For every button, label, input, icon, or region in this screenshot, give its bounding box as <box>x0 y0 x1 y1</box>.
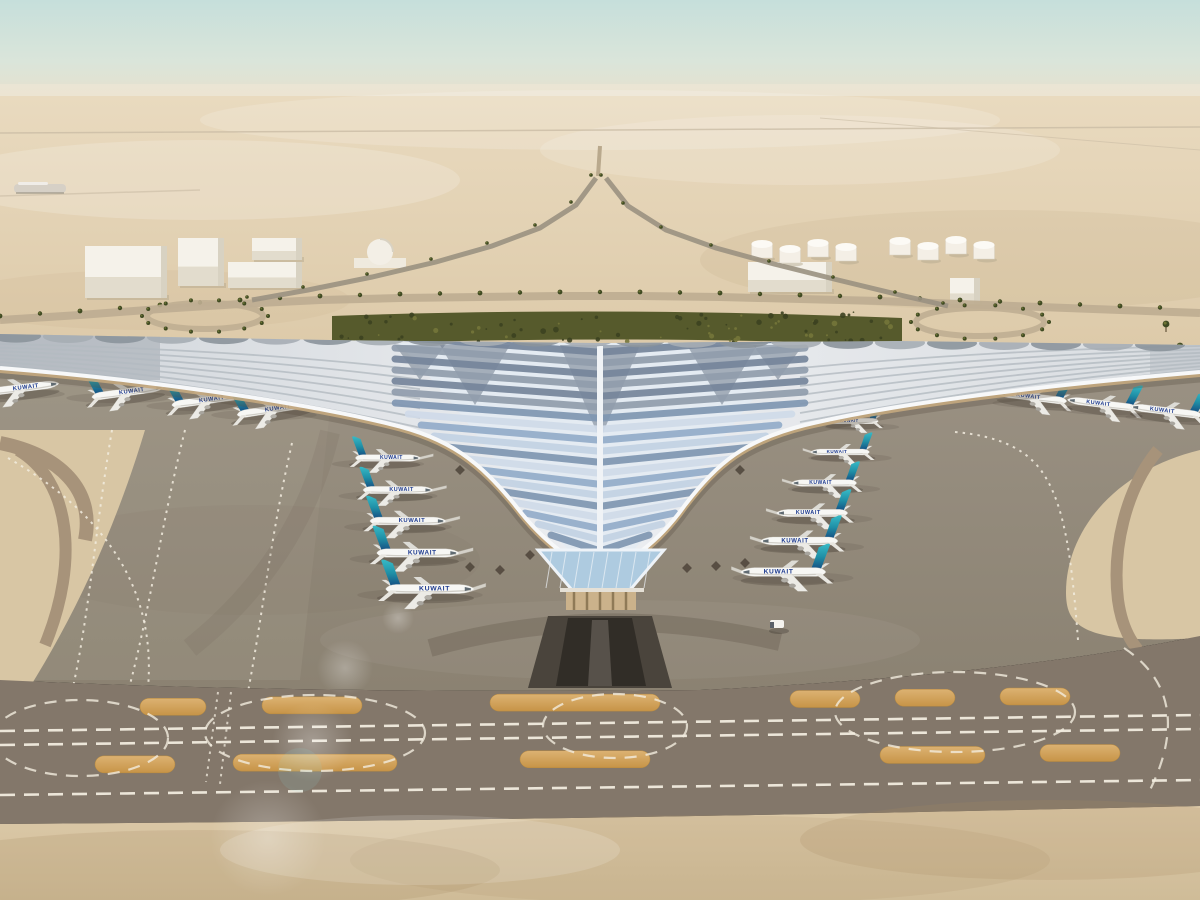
palm-tree <box>301 285 305 289</box>
engine <box>378 467 383 470</box>
palm-tree <box>146 321 150 325</box>
engine <box>406 564 412 568</box>
palm-tree <box>935 333 939 337</box>
palm-tree <box>164 301 168 305</box>
palm-tree <box>621 201 625 205</box>
palm-tree <box>659 225 663 229</box>
palm-tree <box>189 298 193 302</box>
palm-tree <box>1118 304 1123 309</box>
palm-tree <box>993 337 997 341</box>
sand-island <box>1040 745 1120 762</box>
engine <box>397 531 403 535</box>
palm-tree <box>998 299 1002 303</box>
sand-island <box>880 746 985 763</box>
palm-tree <box>533 223 537 227</box>
warehouse <box>85 246 169 300</box>
palm-tree <box>589 173 593 177</box>
palm-tree <box>831 275 835 279</box>
aircraft-livery-title: KUWAIT <box>399 518 426 524</box>
aircraft-livery-title: KUWAIT <box>827 449 848 454</box>
engine <box>403 526 409 530</box>
sand-island <box>490 694 660 711</box>
palm-tree <box>217 298 221 302</box>
sand-island <box>1000 688 1070 705</box>
palm-tree <box>189 330 193 334</box>
palm-tree <box>518 290 522 294</box>
palm-tree <box>767 259 771 263</box>
palm-tree <box>217 330 221 334</box>
palm-tree <box>941 301 945 305</box>
palm-tree <box>242 301 246 305</box>
palm-tree <box>1038 301 1043 306</box>
palm-tree <box>1158 305 1162 309</box>
palm-tree <box>569 200 573 204</box>
palm-tree <box>916 313 920 317</box>
engine <box>394 495 400 499</box>
palm-tree <box>242 327 246 331</box>
palm-tree <box>38 311 42 315</box>
engine <box>413 559 420 563</box>
palm-tree <box>678 290 682 294</box>
palm-tree <box>598 290 602 294</box>
palm-tree <box>1040 313 1044 317</box>
palm-tree <box>1021 307 1025 311</box>
palm-tree <box>963 303 967 307</box>
engine <box>384 463 389 466</box>
sand-island <box>140 698 206 715</box>
palm-tree <box>1163 321 1170 328</box>
palm-tree <box>260 307 264 311</box>
palm-tree <box>993 303 997 307</box>
approach-road-trunk <box>598 146 600 176</box>
palm-tree <box>429 257 433 261</box>
engine <box>417 601 424 605</box>
warehouse <box>252 238 304 262</box>
palm-tree <box>140 314 144 318</box>
engine <box>856 428 860 430</box>
palm-tree <box>709 243 713 247</box>
palm-tree <box>146 307 150 311</box>
palm-tree <box>1040 327 1044 331</box>
aircraft-livery-title: KUWAIT <box>419 585 450 592</box>
engine <box>388 500 393 503</box>
palm-tree <box>438 291 442 295</box>
palm-tree <box>118 306 122 310</box>
palm-tree <box>958 298 963 303</box>
palm-tree <box>245 295 249 299</box>
palm-tree <box>718 291 723 296</box>
engine <box>797 547 804 551</box>
palm-tree <box>318 294 323 299</box>
palm-tree <box>558 290 563 295</box>
palm-tree <box>164 327 168 331</box>
airport-rendering-stage: Aerial rendering of a desert airport ter… <box>0 0 1200 900</box>
sand-island <box>790 691 860 708</box>
aircraft-livery-title: KUWAIT <box>389 487 414 493</box>
palm-tree <box>963 337 967 341</box>
palm-tree <box>599 173 603 177</box>
palm-tree <box>878 295 883 300</box>
aircraft-livery-title: KUWAIT <box>809 480 832 486</box>
engine <box>817 523 823 526</box>
palm-tree <box>798 293 803 298</box>
engine <box>823 488 828 491</box>
engine <box>789 584 796 588</box>
service-tunnel <box>528 616 672 688</box>
warehouse <box>178 238 226 288</box>
palm-tree <box>358 293 362 297</box>
engine <box>829 492 834 495</box>
warehouse <box>228 262 304 290</box>
aircraft-livery-title: KUWAIT <box>781 538 808 544</box>
engine <box>425 595 432 600</box>
palm-tree <box>260 321 264 325</box>
aircraft-livery-title: KUWAIT <box>796 510 821 516</box>
sand-island <box>95 756 175 773</box>
palm-tree <box>838 294 842 298</box>
palm-tree <box>638 290 643 295</box>
sand-island <box>895 689 955 706</box>
palm-tree <box>916 327 920 331</box>
palm-tree <box>478 291 483 296</box>
palm-tree <box>266 314 270 318</box>
engine <box>805 552 811 556</box>
palm-tree <box>1021 333 1025 337</box>
palm-tree <box>1078 302 1082 306</box>
palm-tree <box>935 307 939 311</box>
palm-tree <box>1047 320 1051 324</box>
palm-tree <box>238 298 243 303</box>
airport-scene-svg: KUWAITKUWAITKUWAITKUWAITKUWAITKUWAITKUWA… <box>0 0 1200 900</box>
palm-tree <box>78 309 83 314</box>
engine <box>781 578 788 582</box>
palm-tree <box>758 292 762 296</box>
engine <box>844 460 849 463</box>
palm-tree <box>398 292 403 297</box>
engine <box>810 518 816 522</box>
palm-tree <box>485 241 489 245</box>
sand-island <box>520 751 650 768</box>
palm-tree <box>365 272 369 276</box>
aircraft-livery-title: KUWAIT <box>380 455 403 461</box>
aircraft-livery-title: KUWAIT <box>764 568 794 575</box>
palm-tree <box>909 320 913 324</box>
engine <box>839 456 844 459</box>
aircraft-livery-title: KUWAIT <box>408 549 437 556</box>
palm-tree <box>893 290 897 294</box>
